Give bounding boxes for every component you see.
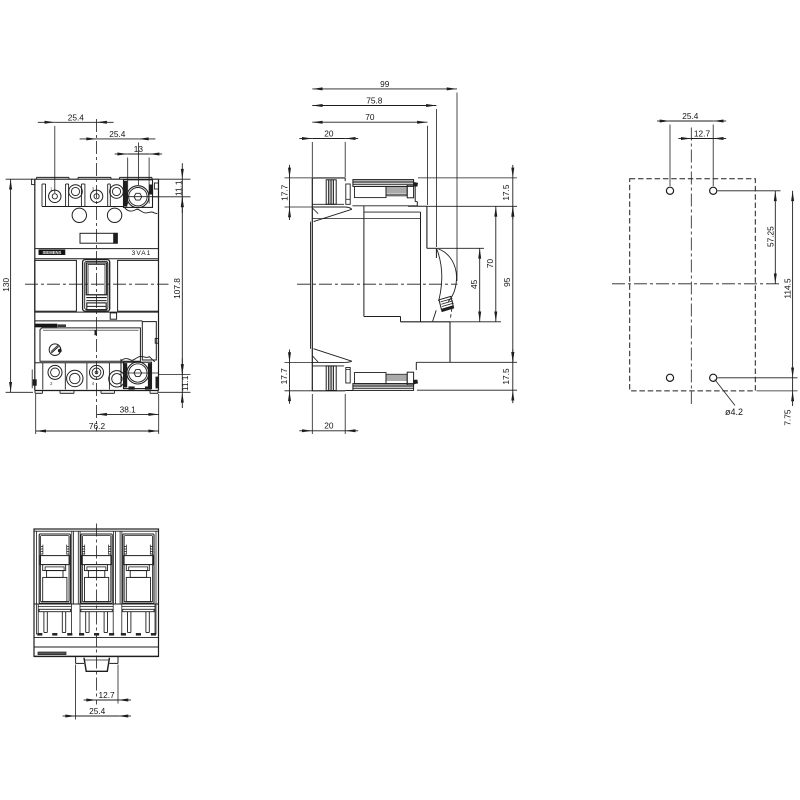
svg-text:130: 130 (1, 277, 11, 291)
svg-text:70: 70 (485, 259, 495, 269)
svg-text:20: 20 (324, 421, 334, 431)
svg-text:25.4: 25.4 (89, 706, 106, 716)
svg-text:45: 45 (469, 279, 479, 289)
svg-text:11.1: 11.1 (174, 180, 184, 196)
svg-text:17.7: 17.7 (279, 184, 289, 201)
svg-text:11.1: 11.1 (180, 375, 190, 391)
svg-text:76.2: 76.2 (89, 421, 106, 431)
svg-text:17.5: 17.5 (501, 184, 511, 201)
svg-text:3VA1: 3VA1 (132, 250, 152, 257)
svg-text:95: 95 (502, 277, 512, 287)
svg-text:99: 99 (380, 79, 390, 89)
svg-text:25.4: 25.4 (109, 129, 126, 139)
svg-text:20: 20 (324, 128, 334, 138)
svg-text:7.75: 7.75 (782, 409, 792, 426)
svg-text:17.7: 17.7 (279, 368, 289, 385)
svg-text:17.5: 17.5 (501, 368, 511, 385)
svg-text:12.7: 12.7 (694, 128, 711, 138)
svg-text:57.25: 57.25 (765, 226, 775, 247)
svg-text:75.8: 75.8 (366, 95, 383, 105)
svg-text:SIEMENS: SIEMENS (42, 250, 61, 255)
svg-text:70: 70 (365, 112, 375, 122)
svg-text:38.1: 38.1 (120, 404, 137, 414)
svg-text:12.7: 12.7 (99, 690, 116, 700)
svg-text:107.8: 107.8 (172, 278, 182, 299)
svg-text:ø4.2: ø4.2 (725, 407, 743, 417)
svg-text:13: 13 (134, 144, 144, 154)
svg-text:25.4: 25.4 (68, 112, 85, 122)
svg-text:114.5: 114.5 (783, 278, 793, 299)
svg-text:25.4: 25.4 (682, 111, 699, 121)
